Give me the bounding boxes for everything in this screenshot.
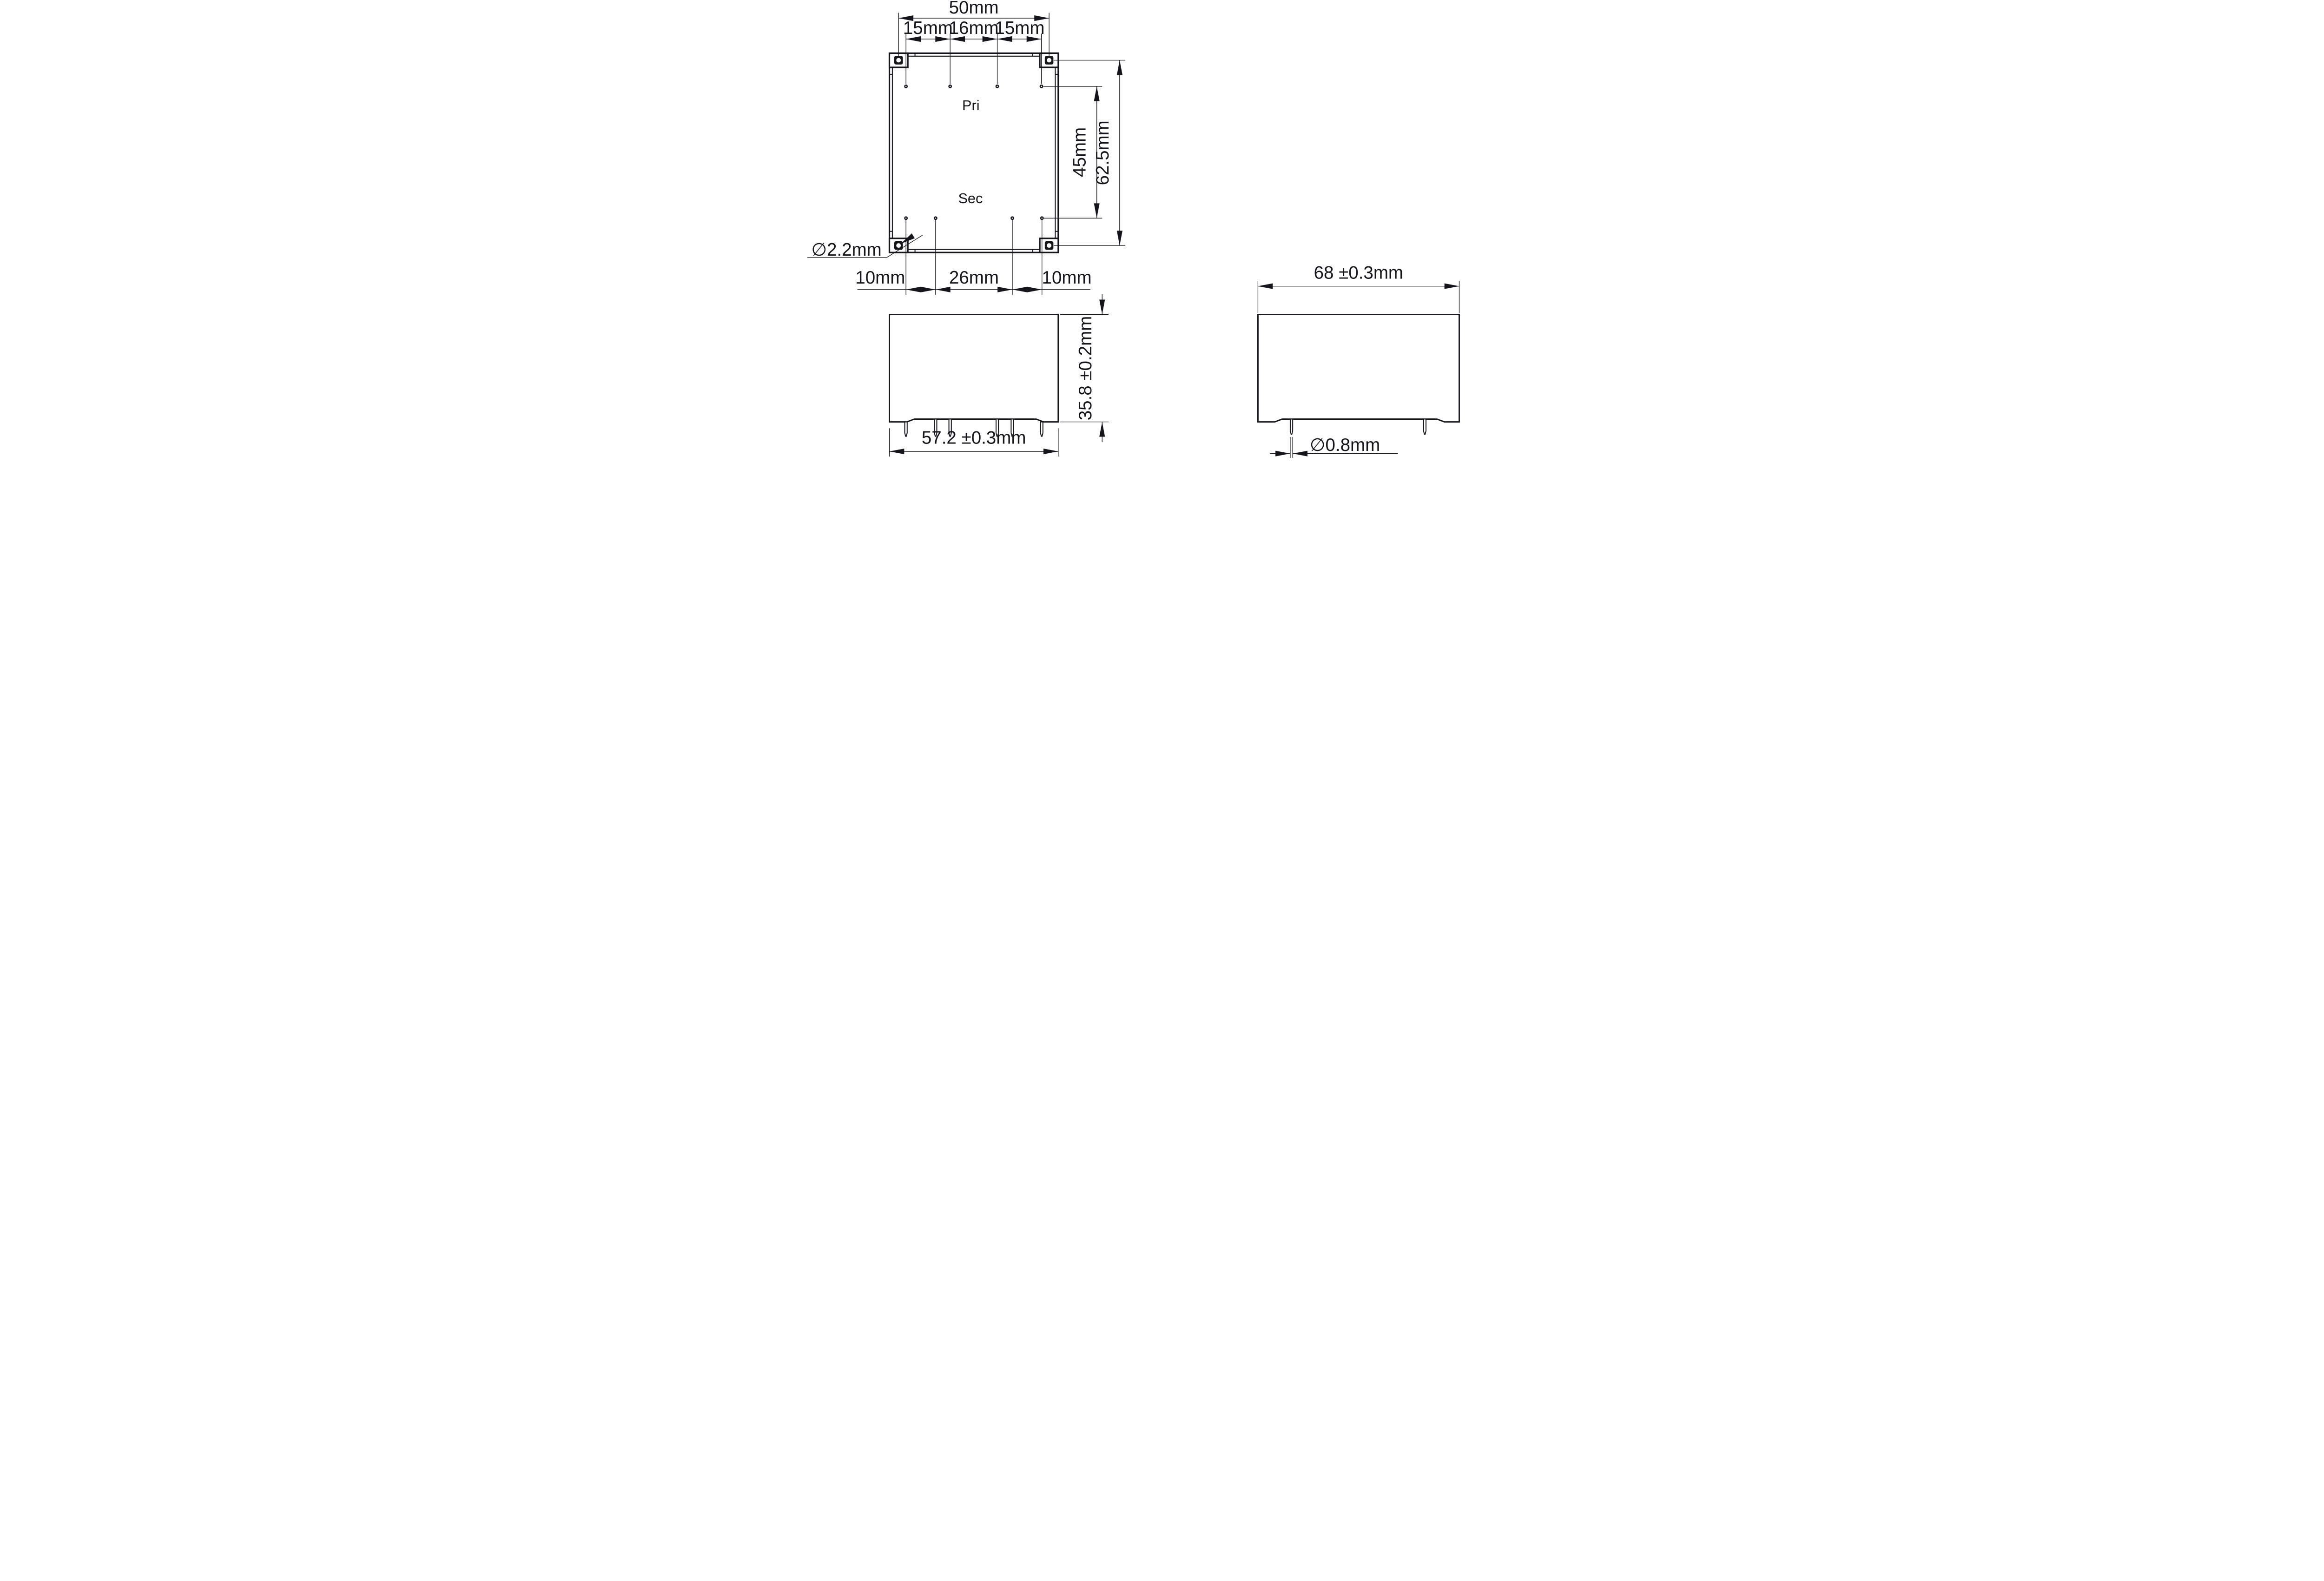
drawing-page: Pri Sec 50mm 15mm 16mm 15mm 45mm <box>799 0 1525 458</box>
dim-pin-diameter: ∅0.8mm <box>1270 435 1398 458</box>
dim-bottom-right-label: 10mm <box>1042 268 1092 288</box>
front-view-body-outline <box>890 314 1058 422</box>
front-view <box>890 314 1058 436</box>
top-view-body-outline <box>890 53 1058 252</box>
dim-front-height-label: 35.8 ±0.2mm <box>1076 316 1096 421</box>
side-view-body-outline <box>1258 314 1459 422</box>
dim-front-width-label: 57.2 ±0.3mm <box>922 428 1026 448</box>
dim-side-width: 68 ±0.3mm <box>1258 263 1459 313</box>
dim-overall-width-label: 50mm <box>949 0 999 18</box>
side-view-pins <box>1290 419 1426 435</box>
dim-front-width: 57.2 ±0.3mm <box>890 428 1058 457</box>
dim-pitch-mid-label: 16mm <box>949 18 999 38</box>
dim-pin-row-spacing-label: 45mm <box>1070 127 1089 177</box>
dim-side-width-label: 68 ±0.3mm <box>1314 263 1403 283</box>
dim-corner-hole-label: ∅2.2mm <box>812 240 882 260</box>
side-view <box>1258 314 1459 434</box>
dim-bottom-mid-label: 26mm <box>949 268 999 288</box>
dim-front-height: 35.8 ±0.2mm <box>1060 294 1109 442</box>
transformer-dimension-drawing: Pri Sec 50mm 15mm 16mm 15mm 45mm <box>799 0 1525 458</box>
secondary-winding-label: Sec <box>958 190 983 206</box>
dim-pitch-right-label: 15mm <box>995 18 1044 38</box>
primary-winding-label: Pri <box>962 97 980 113</box>
dim-pin-diameter-label: ∅0.8mm <box>1310 435 1380 455</box>
dim-overall-height-label: 62.5mm <box>1093 120 1113 185</box>
dim-bottom-left-label: 10mm <box>855 268 905 288</box>
dim-pitch-left-label: 15mm <box>903 18 953 38</box>
top-view: Pri Sec <box>890 53 1058 252</box>
